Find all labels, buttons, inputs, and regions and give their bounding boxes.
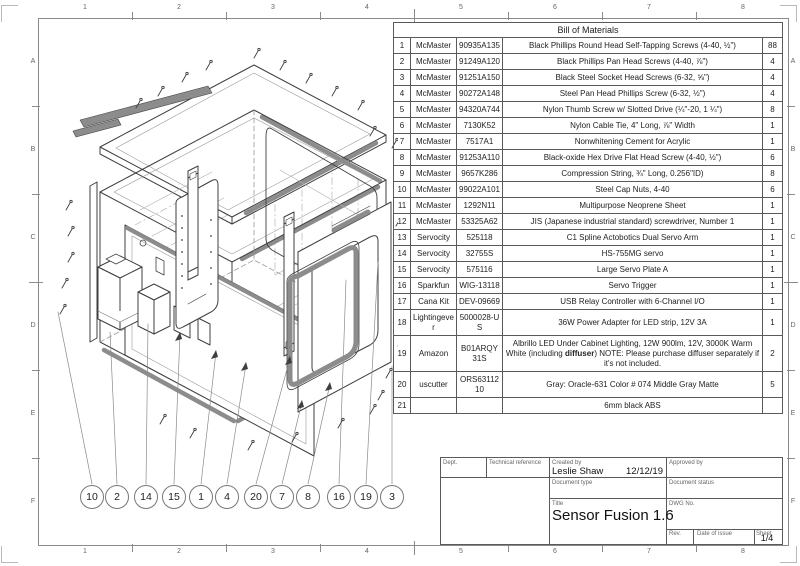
bom-cell-supplier: McMaster [411, 54, 457, 70]
zone-col-bottom: 1 [75, 547, 95, 557]
bom-cell-qty: 1 [763, 214, 783, 230]
bom-cell-no: 15 [394, 262, 411, 278]
bom-row: 2McMaster91249A120Black Phillips Pan Hea… [394, 54, 783, 70]
document-status-label: Document status [669, 480, 714, 486]
bom-cell-supplier: McMaster [411, 198, 457, 214]
bom-cell-supplier: McMaster [411, 150, 457, 166]
bom-cell-part: 525118 [457, 230, 503, 246]
zone-tick [787, 194, 795, 195]
zone-col-top: 3 [263, 3, 283, 13]
bom-cell-description: 6mm black ABS [503, 398, 763, 414]
bom-cell-supplier: Servocity [411, 262, 457, 278]
rev-label: Rev. [669, 531, 681, 537]
bom-cell-part: 7130K52 [457, 118, 503, 134]
zone-col-bottom: 7 [639, 547, 659, 557]
bom-row: 6McMaster7130K52Nylon Cable Tie, 4" Long… [394, 118, 783, 134]
zone-col-bottom: 4 [357, 547, 377, 557]
bom-row: 17Cana KitDEV-09669USB Relay Controller … [394, 294, 783, 310]
zone-tick [784, 282, 798, 283]
bom-row: 10McMaster99022A101Steel Cap Nuts, 4-406 [394, 182, 783, 198]
balloon-19: 19 [354, 485, 378, 509]
bom-cell-description: Compression String, ¾" Long, 0.256"ID) [503, 166, 763, 182]
bom-cell-supplier: McMaster [411, 134, 457, 150]
zone-col-top: 5 [451, 3, 471, 13]
bom-row: 12McMaster53325A62JIS (Japanese industri… [394, 214, 783, 230]
balloon-20: 20 [244, 485, 268, 509]
zone-tick [320, 544, 321, 552]
bom-cell-supplier: McMaster [411, 182, 457, 198]
bom-cell-part: 94320A744 [457, 102, 503, 118]
bom-cell-supplier: Amazon [411, 336, 457, 372]
side-wall-strip [90, 182, 97, 342]
bom-cell-no: 18 [394, 310, 411, 336]
trim-mark-bottom-left [1, 546, 18, 563]
zone-col-bottom: 2 [169, 547, 189, 557]
bom-row: 8McMaster91253A110Black-oxide Hex Drive … [394, 150, 783, 166]
date-of-issue-label: Date of issue [697, 531, 732, 537]
bom-cell-description: Steel Cap Nuts, 4-40 [503, 182, 763, 198]
bom-title: Bill of Materials [394, 23, 783, 38]
bom-cell-qty: 6 [763, 182, 783, 198]
bom-cell-qty: 1 [763, 278, 783, 294]
zone-row-left: F [23, 497, 43, 507]
bom-cell-no: 17 [394, 294, 411, 310]
bom-cell-no: 9 [394, 166, 411, 182]
zone-tick [32, 458, 40, 459]
bom-cell-part: 9657K286 [457, 166, 503, 182]
bom-row: 16SparkfunWIG-13118Servo Trigger1 [394, 278, 783, 294]
bom-cell-part: 90272A148 [457, 86, 503, 102]
zone-col-bottom: 8 [733, 547, 753, 557]
bom-cell-description: Black Steel Socket Head Screws (6-32, ⅝"… [503, 70, 763, 86]
bom-header-row: Bill of Materials [394, 23, 783, 38]
zone-tick [602, 12, 603, 20]
bom-cell-part: DEV-09669 [457, 294, 503, 310]
zone-col-bottom: 5 [451, 547, 471, 557]
zone-tick [696, 12, 697, 20]
bom-row: 11McMaster1292N11Multipurpose Neoprene S… [394, 198, 783, 214]
balloon-3: 3 [380, 485, 404, 509]
bom-cell-qty: 1 [763, 118, 783, 134]
zone-row-right: E [783, 409, 800, 419]
title-block: Dept. Technical reference Created by App… [440, 457, 783, 545]
zone-tick [508, 544, 509, 552]
bom-cell-no: 6 [394, 118, 411, 134]
bom-cell-part: 1292N11 [457, 198, 503, 214]
created-by-value: Leslie Shaw [552, 466, 603, 477]
bom-cell-part: 32755S [457, 246, 503, 262]
bom-cell-part: B01ARQY31S [457, 336, 503, 372]
bom-row: 216mm black ABS [394, 398, 783, 414]
zone-tick [696, 544, 697, 552]
bom-cell-description: Nylon Thumb Screw w/ Slotted Drive (¼"-2… [503, 102, 763, 118]
bom-cell-qty: 1 [763, 294, 783, 310]
created-date-value: 12/12/19 [601, 466, 663, 477]
balloon-16: 16 [327, 485, 351, 509]
zone-col-top: 6 [545, 3, 565, 13]
balloon-10: 10 [80, 485, 104, 509]
bom-cell-no: 19 [394, 336, 411, 372]
bom-cell-supplier: McMaster [411, 214, 457, 230]
bom-cell-description: Gray: Oracle-631 Color # 074 Middle Gray… [503, 372, 763, 398]
zone-col-top: 1 [75, 3, 95, 13]
zone-tick [132, 544, 133, 552]
enclosure-lid [100, 65, 386, 224]
exploded-view-drawing [40, 20, 398, 486]
bom-cell-description: Black-oxide Hex Drive Flat Head Screw (4… [503, 150, 763, 166]
zone-tick [787, 458, 795, 459]
zone-tick [414, 9, 415, 23]
bom-cell-qty: 1 [763, 134, 783, 150]
bom-cell-description: Large Servo Plate A [503, 262, 763, 278]
bom-cell-no: 16 [394, 278, 411, 294]
bom-cell-part: 90935A135 [457, 38, 503, 54]
bom-cell-supplier [411, 398, 457, 414]
bom-cell-qty: 5 [763, 372, 783, 398]
zone-row-right: D [783, 321, 800, 331]
bom-cell-part: 91249A120 [457, 54, 503, 70]
bom-cell-supplier: Sparkfun [411, 278, 457, 294]
bom-cell-no: 10 [394, 182, 411, 198]
zone-col-top: 2 [169, 3, 189, 13]
bom-row: 1McMaster90935A135Black Phillips Round H… [394, 38, 783, 54]
bom-cell-no: 7 [394, 134, 411, 150]
bom-cell-supplier: uscutter [411, 372, 457, 398]
bom-cell-supplier: McMaster [411, 102, 457, 118]
bom-cell-description: 36W Power Adapter for LED strip, 12V 3A [503, 310, 763, 336]
bom-cell-no: 3 [394, 70, 411, 86]
technical-reference-label: Technical reference [489, 460, 541, 466]
bom-cell-no: 20 [394, 372, 411, 398]
trim-mark-top-left [1, 5, 18, 22]
bom-cell-qty: 4 [763, 70, 783, 86]
bom-cell-description: JIS (Japanese industrial standard) screw… [503, 214, 763, 230]
bom-cell-qty: 1 [763, 262, 783, 278]
bom-cell-description: USB Relay Controller with 6-Channel I/O [503, 294, 763, 310]
bom-cell-no: 4 [394, 86, 411, 102]
bom-cell-part: 99022A101 [457, 182, 503, 198]
zone-col-bottom: 3 [263, 547, 283, 557]
balloon-2: 2 [105, 485, 129, 509]
bom-row: 3McMaster91251A150Black Steel Socket Hea… [394, 70, 783, 86]
bom-cell-no: 11 [394, 198, 411, 214]
balloon-7: 7 [270, 485, 294, 509]
power-adapter-box [98, 254, 142, 330]
zone-tick [602, 544, 603, 552]
trim-mark-bottom-right [780, 546, 797, 563]
bom-cell-part: 5000028-US [457, 310, 503, 336]
bom-cell-no: 1 [394, 38, 411, 54]
bom-cell-no: 21 [394, 398, 411, 414]
balloon-4: 4 [215, 485, 239, 509]
bom-row: 13Servocity525118C1 Spline Actobotics Du… [394, 230, 783, 246]
bom-cell-supplier: McMaster [411, 86, 457, 102]
bom-row: 5McMaster94320A744Nylon Thumb Screw w/ S… [394, 102, 783, 118]
zone-tick [320, 12, 321, 20]
bom-cell-supplier: Lightingever [411, 310, 457, 336]
bom-cell-description: Multipurpose Neoprene Sheet [503, 198, 763, 214]
bom-cell-qty [763, 398, 783, 414]
bom-cell-supplier: Servocity [411, 230, 457, 246]
bom-row: 7McMaster7517A1Nonwhitening Cement for A… [394, 134, 783, 150]
bom-cell-part: 53325A62 [457, 214, 503, 230]
bom-cell-part: 91251A150 [457, 70, 503, 86]
bom-cell-description: C1 Spline Actobotics Dual Servo Arm [503, 230, 763, 246]
zone-tick [132, 12, 133, 20]
bom-cell-qty: 1 [763, 246, 783, 262]
bom-cell-part: 91253A110 [457, 150, 503, 166]
bom-cell-description: Nonwhitening Cement for Acrylic [503, 134, 763, 150]
bom-row: 20uscutterORS6311210Gray: Oracle-631 Col… [394, 372, 783, 398]
zone-tick [32, 370, 40, 371]
bom-cell-qty: 1 [763, 198, 783, 214]
dept-label: Dept. [443, 460, 457, 466]
balloon-8: 8 [296, 485, 320, 509]
zone-row-right: B [783, 145, 800, 155]
bom-cell-supplier: McMaster [411, 166, 457, 182]
bom-cell-qty: 1 [763, 310, 783, 336]
bom-cell-qty: 1 [763, 230, 783, 246]
bom-cell-qty: 8 [763, 166, 783, 182]
bom-cell-no: 8 [394, 150, 411, 166]
zone-tick [508, 12, 509, 20]
bom-cell-part: 7517A1 [457, 134, 503, 150]
bom-cell-no: 5 [394, 102, 411, 118]
balloon-15: 15 [162, 485, 186, 509]
bom-cell-part [457, 398, 503, 414]
bom-row: 14Servocity32755SHS-755MG servo1 [394, 246, 783, 262]
bom-row: 19AmazonB01ARQY31SAlbrillo LED Under Cab… [394, 336, 783, 372]
bom-cell-no: 14 [394, 246, 411, 262]
zone-col-bottom: 6 [545, 547, 565, 557]
bom-cell-qty: 8 [763, 102, 783, 118]
zone-tick [787, 370, 795, 371]
bom-cell-description: Servo Trigger [503, 278, 763, 294]
bom-cell-supplier: McMaster [411, 38, 457, 54]
zone-tick [787, 106, 795, 107]
zone-tick [226, 12, 227, 20]
zone-row-right: C [783, 233, 800, 243]
zone-tick [32, 194, 40, 195]
bom-cell-description: Nylon Cable Tie, 4" Long, ⅞" Width [503, 118, 763, 134]
zone-row-right: F [783, 497, 800, 507]
zone-col-top: 8 [733, 3, 753, 13]
drawing-title: Sensor Fusion 1.6 [552, 507, 674, 524]
balloon-14: 14 [134, 485, 158, 509]
bom-cell-qty: 4 [763, 86, 783, 102]
bom-row: 15Servocity575116Large Servo Plate A1 [394, 262, 783, 278]
bom-cell-no: 2 [394, 54, 411, 70]
sheet-number: 1/4 [754, 533, 780, 543]
bom-cell-description: Albrillo LED Under Cabinet Lighting, 12W… [503, 336, 763, 372]
bom-cell-supplier: Cana Kit [411, 294, 457, 310]
bom-cell-no: 13 [394, 230, 411, 246]
bom-row: 9McMaster9657K286Compression String, ¾" … [394, 166, 783, 182]
bom-cell-description: Steel Pan Head Phillips Screw (6-32, ½") [503, 86, 763, 102]
approved-by-label: Approved by [669, 460, 703, 466]
bom-cell-no: 12 [394, 214, 411, 230]
bom-cell-part: 575116 [457, 262, 503, 278]
zone-tick [32, 106, 40, 107]
bom-row: 4McMaster90272A148Steel Pan Head Phillip… [394, 86, 783, 102]
bom-cell-qty: 88 [763, 38, 783, 54]
bom-cell-qty: 4 [763, 54, 783, 70]
trim-mark-top-right [780, 5, 797, 22]
zone-tick [414, 541, 415, 555]
bom-cell-description: Black Phillips Pan Head Screws (4-40, ⅞"… [503, 54, 763, 70]
bom-cell-part: WIG-13118 [457, 278, 503, 294]
zone-col-top: 4 [357, 3, 377, 13]
bom-row: 18Lightingever5000028-US36W Power Adapte… [394, 310, 783, 336]
bill-of-materials-table: Bill of Materials 1McMaster90935A135Blac… [393, 22, 783, 414]
bom-cell-supplier: Servocity [411, 246, 457, 262]
zone-row-right: A [783, 57, 800, 67]
zone-tick [226, 544, 227, 552]
document-type-label: Document type [552, 480, 592, 486]
bom-cell-description: HS-755MG servo [503, 246, 763, 262]
bom-cell-qty: 6 [763, 150, 783, 166]
engineering-drawing-sheet: { "sheet": { "zones_horizontal": ["1","2… [0, 0, 800, 566]
bom-cell-supplier: McMaster [411, 70, 457, 86]
zone-col-top: 7 [639, 3, 659, 13]
bom-cell-qty: 2 [763, 336, 783, 372]
servo-box [138, 284, 170, 334]
bom-cell-description: Black Phillips Round Head Self-Tapping S… [503, 38, 763, 54]
bom-cell-supplier: McMaster [411, 118, 457, 134]
balloon-1: 1 [189, 485, 213, 509]
bom-cell-part: ORS6311210 [457, 372, 503, 398]
